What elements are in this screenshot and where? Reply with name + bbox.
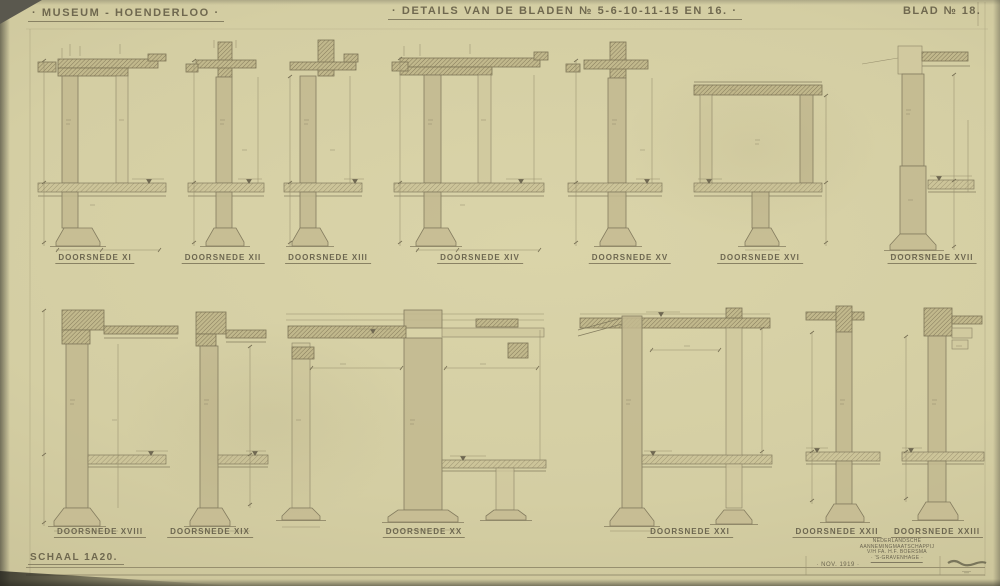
caption-doorsnede-xvii: DOORSNEDE XVII	[888, 253, 977, 264]
sheet-subtitle: · DETAILS VAN DE BLADEN № 5-6-10-11-15 E…	[388, 5, 742, 20]
caption-doorsnede-xxi: DOORSNEDE XXI	[647, 527, 733, 538]
caption-doorsnede-xx: DOORSNEDE XX	[383, 527, 465, 538]
signature-mark	[948, 561, 986, 565]
sheet-title: · MUSEUM - HOENDERLOO ·	[28, 7, 224, 22]
detail-doorsnede-xiv	[392, 44, 548, 252]
caption-doorsnede-xvi: DOORSNEDE XVI	[717, 253, 803, 264]
detail-doorsnede-xi	[38, 44, 166, 252]
sheet-number: BLAD № 18.	[903, 5, 981, 17]
caption-doorsnede-xviii: DOORSNEDE XVIII	[54, 527, 146, 538]
caption-doorsnede-xiii: DOORSNEDE XIII	[285, 253, 371, 264]
caption-doorsnede-xix: DOORSNEDE XIX	[167, 527, 253, 538]
caption-doorsnede-xiv: DOORSNEDE XIV	[437, 253, 523, 264]
caption-doorsnede-xv: DOORSNEDE XV	[589, 253, 671, 264]
detail-doorsnede-xxi	[578, 308, 772, 531]
drawing-sheet: · MUSEUM - HOENDERLOO · · DETAILS VAN DE…	[0, 0, 1000, 586]
detail-doorsnede-xv	[566, 42, 662, 247]
caption-doorsnede-xxii: DOORSNEDE XXII	[793, 527, 882, 538]
detail-doorsnede-xviii	[42, 309, 178, 531]
contractor-stamp: NEDERLANDSCHE AANNEMINGMAATSCHAPPIJ V/H …	[860, 539, 935, 563]
detail-doorsnede-xxii	[806, 306, 880, 523]
scale-label: SCHAAL 1A20.	[28, 552, 124, 565]
detail-doorsnede-xvii	[862, 46, 976, 255]
detail-doorsnede-xx	[276, 310, 546, 530]
detail-doorsnede-xxiii	[902, 308, 984, 521]
caption-doorsnede-xii: DOORSNEDE XII	[182, 253, 265, 264]
detail-doorsnede-xii	[186, 40, 264, 247]
detail-doorsnede-xiii	[284, 40, 364, 247]
detail-doorsnede-xix	[184, 312, 268, 531]
drawing-linework	[0, 0, 1000, 586]
detail-doorsnede-xvi	[694, 82, 828, 250]
caption-doorsnede-xi: DOORSNEDE XI	[55, 253, 134, 264]
stamp-line-4: · 'S-GRAVENHAGE ·	[871, 556, 923, 563]
date-label: · NOV. 1919 ·	[817, 562, 860, 568]
caption-doorsnede-xxiii: DOORSNEDE XXIII	[891, 527, 983, 538]
